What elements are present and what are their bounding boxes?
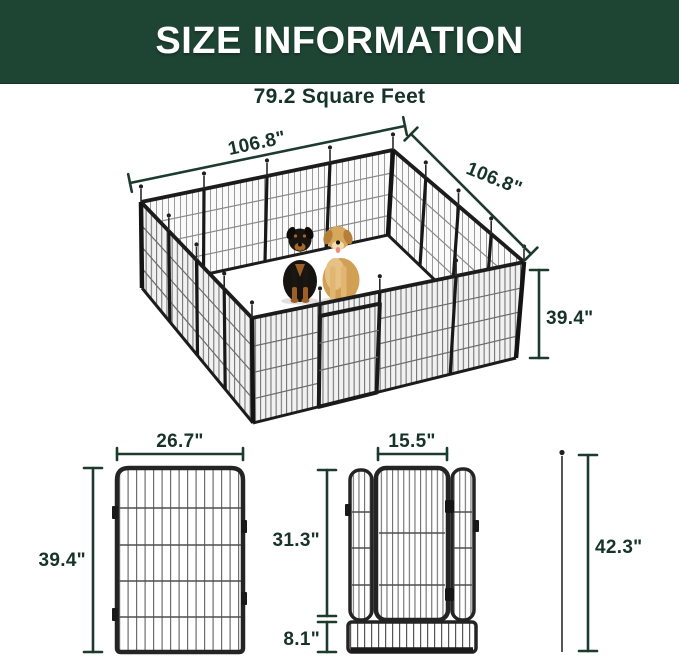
door-hinge bbox=[445, 588, 454, 601]
base-height-label: 8.1" bbox=[283, 629, 320, 650]
pen-height-label: 39.4" bbox=[546, 308, 594, 329]
panel-latch-tab bbox=[112, 608, 118, 621]
panel-height-label: 39.4" bbox=[39, 550, 87, 571]
door-latch-tab bbox=[345, 504, 351, 516]
banner: SIZE INFORMATION bbox=[0, 0, 679, 84]
pen-height-dimension: 39.4" bbox=[530, 270, 594, 358]
door-hinge bbox=[445, 500, 454, 513]
pen-depth-label: 106.8" bbox=[463, 158, 525, 199]
pen-width-label: 106.8" bbox=[226, 127, 287, 160]
door-panel-diagram: 15.5" 31.3" 8.1" bbox=[273, 431, 480, 652]
panel-latch-tab bbox=[112, 506, 118, 519]
page-title: SIZE INFORMATION bbox=[155, 20, 523, 63]
door-latch-tab bbox=[473, 520, 479, 532]
door-front-view bbox=[376, 468, 448, 620]
area-label: 79.2 Square Feet bbox=[0, 84, 679, 110]
size-information-sheet: SIZE INFORMATION 79.2 Square Feet bbox=[0, 0, 679, 656]
corner-post bbox=[252, 318, 253, 423]
door-height-label: 31.3" bbox=[273, 530, 321, 551]
panel-width-label: 26.7" bbox=[156, 431, 204, 452]
playpen-diagram: 106.8" 106.8" 39.4" 26.7" 39.4" bbox=[0, 110, 679, 656]
ground-stake-top bbox=[559, 450, 564, 455]
panel-diagram: 26.7" 39.4" bbox=[39, 431, 248, 652]
panel-latch-tab bbox=[241, 520, 247, 533]
door-width-label: 15.5" bbox=[388, 431, 436, 452]
stake-diagram: 42.3" bbox=[559, 450, 642, 652]
pen-door bbox=[319, 304, 380, 407]
panel-latch-tab bbox=[241, 592, 247, 605]
total-height-label: 42.3" bbox=[595, 537, 643, 558]
panel-front-view bbox=[117, 468, 243, 652]
door-side-strip-right bbox=[452, 469, 474, 620]
corner-post bbox=[141, 202, 142, 288]
door-side-strip-left bbox=[350, 470, 372, 620]
